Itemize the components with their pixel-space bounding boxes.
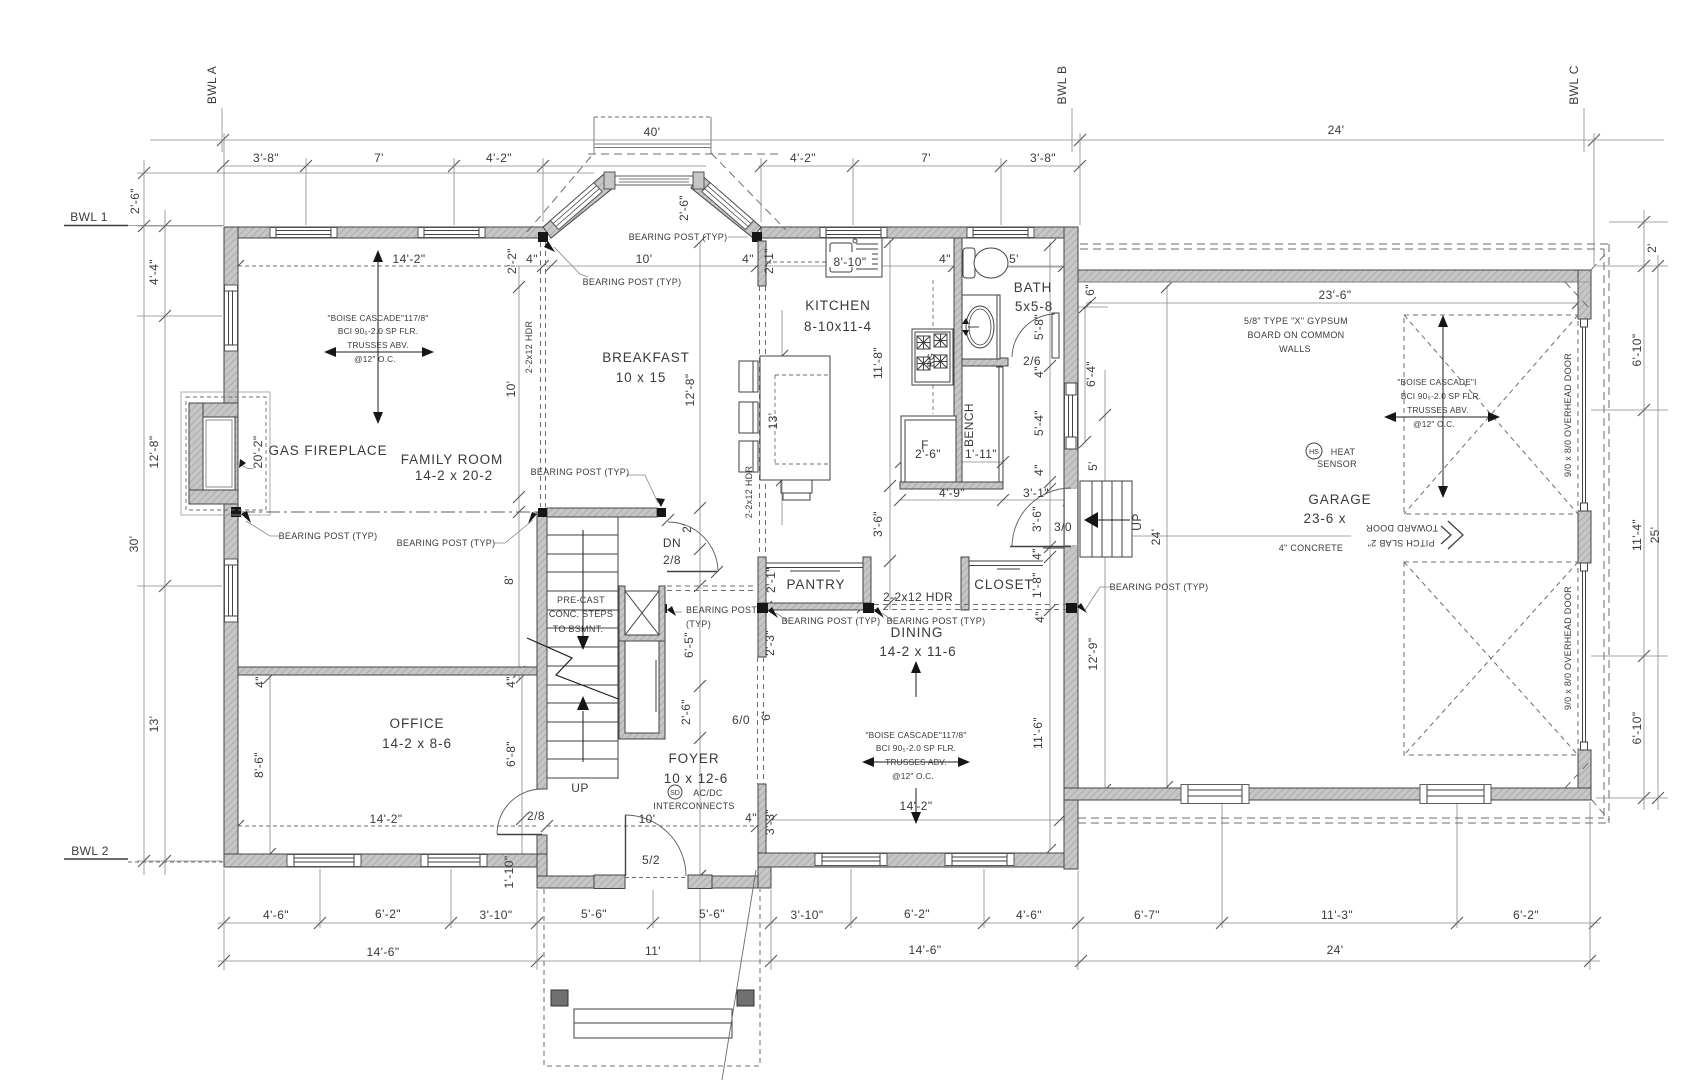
svg-text:@12" O.C.: @12" O.C.	[354, 354, 396, 364]
svg-text:BEARING POST (TYP): BEARING POST (TYP)	[782, 616, 881, 626]
svg-text:BCI 90₅-2.0 SP FLR.: BCI 90₅-2.0 SP FLR.	[338, 326, 418, 336]
svg-text:6'-2": 6'-2"	[1513, 908, 1539, 922]
svg-text:10': 10'	[504, 381, 518, 398]
svg-text:"BOISE CASCADE"117/8": "BOISE CASCADE"117/8"	[866, 730, 967, 740]
svg-text:2': 2'	[1645, 243, 1659, 253]
svg-text:7': 7'	[374, 151, 384, 165]
svg-text:6'-8": 6'-8"	[504, 741, 518, 767]
svg-text:4'-2": 4'-2"	[486, 151, 512, 165]
svg-text:2'-2": 2'-2"	[505, 248, 519, 274]
svg-text:14-2 x 8-6: 14-2 x 8-6	[382, 736, 452, 751]
svg-text:8': 8'	[502, 575, 516, 585]
svg-text:6'-7": 6'-7"	[1134, 908, 1160, 922]
svg-text:4'-2": 4'-2"	[790, 151, 816, 165]
svg-text:BEARING POST (TYP): BEARING POST (TYP)	[1110, 582, 1209, 592]
svg-text:2': 2'	[680, 523, 694, 533]
svg-text:14'-2": 14'-2"	[393, 252, 426, 266]
svg-text:PRE-CAST: PRE-CAST	[557, 595, 605, 605]
svg-text:12'-9": 12'-9"	[1086, 638, 1100, 671]
svg-text:1'-8": 1'-8"	[1030, 572, 1044, 598]
svg-text:BEARING POST (TYP): BEARING POST (TYP)	[397, 538, 496, 548]
svg-text:1'-11": 1'-11"	[965, 447, 997, 461]
svg-text:10 x 15: 10 x 15	[616, 370, 667, 385]
svg-text:8-10x11-4: 8-10x11-4	[804, 319, 872, 334]
svg-text:5x5-8: 5x5-8	[1015, 299, 1053, 314]
svg-text:4'-6": 4'-6"	[1016, 908, 1042, 922]
svg-text:6'-2": 6'-2"	[375, 907, 401, 921]
svg-text:BREAKFAST: BREAKFAST	[602, 350, 690, 365]
svg-text:12'-8": 12'-8"	[683, 374, 697, 407]
svg-text:2-2x12 HDR: 2-2x12 HDR	[524, 321, 534, 374]
svg-text:5': 5'	[1009, 252, 1019, 266]
svg-text:3'-1": 3'-1"	[1023, 486, 1049, 500]
svg-text:BATH: BATH	[1014, 280, 1053, 295]
svg-text:3'-3": 3'-3"	[763, 809, 777, 835]
svg-text:TRUSSES ABV.: TRUSSES ABV.	[1407, 405, 1469, 415]
svg-text:11'-6": 11'-6"	[1031, 717, 1045, 749]
svg-text:9/0 x 8/0 OVERHEAD DOOR: 9/0 x 8/0 OVERHEAD DOOR	[1563, 586, 1573, 710]
svg-text:4" CONCRETE: 4" CONCRETE	[1279, 543, 1344, 553]
svg-text:7': 7'	[921, 151, 931, 165]
svg-text:BEARING POST (TYP): BEARING POST (TYP)	[531, 467, 630, 477]
svg-text:BEARING POST (TYP): BEARING POST (TYP)	[629, 232, 728, 242]
svg-text:4'-6": 4'-6"	[263, 908, 289, 922]
svg-text:14'-2": 14'-2"	[370, 812, 403, 826]
svg-text:4": 4"	[939, 252, 951, 266]
svg-text:3'-10": 3'-10"	[480, 908, 513, 922]
svg-text:BOARD ON COMMON: BOARD ON COMMON	[1247, 330, 1344, 340]
svg-text:23'-6": 23'-6"	[1319, 288, 1352, 302]
svg-text:14'-6": 14'-6"	[909, 943, 942, 957]
svg-text:8'-10": 8'-10"	[834, 255, 867, 269]
svg-text:BENCH: BENCH	[962, 403, 976, 447]
svg-text:UP: UP	[571, 781, 588, 795]
svg-text:HS: HS	[1309, 449, 1319, 456]
svg-text:4": 4"	[1030, 548, 1044, 560]
svg-text:@12" O.C.: @12" O.C.	[892, 771, 934, 781]
svg-text:F: F	[921, 438, 929, 452]
svg-text:TRUSSES ABV.: TRUSSES ABV.	[347, 340, 409, 350]
svg-text:FOYER: FOYER	[668, 751, 719, 766]
svg-text:(TYP): (TYP)	[686, 619, 711, 629]
svg-text:3/0: 3/0	[1054, 520, 1072, 534]
svg-text:6/0: 6/0	[732, 713, 750, 727]
svg-text:TO BSMNT.: TO BSMNT.	[553, 624, 604, 634]
svg-text:11'-8": 11'-8"	[871, 347, 885, 379]
svg-text:14-2 x 11-6: 14-2 x 11-6	[879, 644, 956, 659]
svg-text:10': 10'	[636, 252, 653, 266]
svg-text:1'-10": 1'-10"	[502, 856, 516, 889]
svg-text:GARAGE: GARAGE	[1308, 492, 1371, 507]
svg-text:14'-2": 14'-2"	[900, 799, 933, 813]
svg-text:@12" O.C.: @12" O.C.	[1413, 419, 1455, 429]
svg-text:24': 24'	[1327, 943, 1344, 957]
svg-text:CLOSET: CLOSET	[974, 577, 1033, 592]
svg-text:6'-10": 6'-10"	[1630, 712, 1644, 745]
svg-text:5'-4": 5'-4"	[1032, 410, 1046, 436]
svg-text:PITCH SLAB 2": PITCH SLAB 2"	[1367, 538, 1434, 548]
svg-text:4": 4"	[526, 252, 538, 266]
svg-text:5': 5'	[1086, 461, 1100, 471]
svg-text:14'-6": 14'-6"	[367, 945, 400, 959]
svg-text:TOWARD DOOR: TOWARD DOOR	[1366, 523, 1438, 533]
svg-text:UP: UP	[1130, 513, 1144, 530]
svg-text:9/0 x 8/0 OVERHEAD DOOR: 9/0 x 8/0 OVERHEAD DOOR	[1563, 353, 1573, 477]
svg-text:6'-5": 6'-5"	[682, 632, 696, 658]
svg-text:CONC. STEPS: CONC. STEPS	[549, 609, 613, 619]
svg-text:2'-1": 2'-1"	[762, 248, 776, 274]
svg-text:SD: SD	[670, 790, 680, 797]
svg-text:RG: RG	[926, 353, 936, 367]
svg-text:5'-6": 5'-6"	[699, 907, 725, 921]
svg-text:3'-6": 3'-6"	[1030, 506, 1044, 532]
svg-text:11': 11'	[645, 944, 661, 958]
svg-text:4": 4"	[504, 676, 518, 688]
svg-text:8'-6": 8'-6"	[252, 752, 266, 778]
svg-text:3'-6": 3'-6"	[871, 511, 885, 537]
svg-text:PANTRY: PANTRY	[787, 577, 846, 592]
svg-text:12'-8": 12'-8"	[147, 436, 161, 469]
svg-text:24': 24'	[1149, 529, 1163, 546]
svg-text:40': 40'	[644, 125, 661, 139]
svg-text:14-2 x 20-2: 14-2 x 20-2	[415, 468, 493, 483]
svg-text:FAMILY ROOM: FAMILY ROOM	[401, 452, 503, 467]
svg-text:3'-10": 3'-10"	[791, 908, 824, 922]
svg-text:4": 4"	[745, 811, 757, 825]
svg-text:11'-3": 11'-3"	[1321, 908, 1353, 922]
svg-text:BCI 90₅-2.0 SP FLR.: BCI 90₅-2.0 SP FLR.	[876, 743, 956, 753]
svg-text:20'-2": 20'-2"	[251, 436, 265, 469]
svg-text:DN: DN	[663, 536, 681, 550]
svg-text:2-2x12 HDR: 2-2x12 HDR	[744, 466, 754, 519]
svg-text:AC/DC: AC/DC	[693, 788, 723, 798]
svg-text:23-6 x: 23-6 x	[1304, 511, 1347, 526]
svg-text:3'-8": 3'-8"	[1030, 151, 1056, 165]
svg-text:5/8" TYPE "X" GYPSUM: 5/8" TYPE "X" GYPSUM	[1244, 316, 1348, 326]
svg-text:GAS FIREPLACE: GAS FIREPLACE	[269, 443, 388, 458]
svg-text:6'-2": 6'-2"	[904, 907, 930, 921]
svg-text:24': 24'	[1328, 123, 1345, 137]
svg-text:INTERCONNECTS: INTERCONNECTS	[653, 801, 734, 811]
svg-text:6': 6'	[759, 711, 773, 721]
svg-text:5/2: 5/2	[642, 853, 660, 867]
svg-text:4'-9": 4'-9"	[939, 486, 965, 500]
svg-text:BCI 90₅-2.0 SP FLR.: BCI 90₅-2.0 SP FLR.	[1401, 391, 1481, 401]
svg-text:2'-3": 2'-3"	[763, 630, 777, 656]
svg-text:BWL C: BWL C	[1567, 65, 1581, 105]
svg-text:2/6: 2/6	[1023, 354, 1041, 368]
svg-text:4": 4"	[1033, 611, 1047, 623]
svg-text:4": 4"	[1032, 366, 1046, 378]
svg-text:BEARING POST (TYP): BEARING POST (TYP)	[887, 616, 986, 626]
svg-text:BEARING POST (TYP): BEARING POST (TYP)	[583, 277, 682, 287]
svg-text:BEARING POST: BEARING POST	[686, 605, 757, 615]
svg-text:2'-6": 2'-6"	[677, 195, 691, 221]
svg-text:10 x 12-6: 10 x 12-6	[664, 771, 728, 786]
svg-text:HEAT: HEAT	[1331, 447, 1356, 457]
svg-text:2'-6": 2'-6"	[128, 188, 142, 214]
svg-text:13': 13'	[766, 413, 780, 430]
svg-text:SENSOR: SENSOR	[1317, 459, 1357, 469]
svg-text:"BOISE CASCADE"I: "BOISE CASCADE"I	[1397, 377, 1476, 387]
svg-text:4": 4"	[253, 676, 267, 688]
svg-text:30': 30'	[127, 536, 141, 553]
svg-text:2-2x12 HDR: 2-2x12 HDR	[883, 590, 953, 604]
svg-text:OFFICE: OFFICE	[390, 716, 445, 731]
svg-text:11'-4": 11'-4"	[1630, 519, 1644, 551]
svg-text:2/8: 2/8	[527, 809, 545, 823]
svg-text:6'-4": 6'-4"	[1084, 361, 1098, 387]
svg-text:10': 10'	[639, 812, 656, 826]
svg-text:BWL B: BWL B	[1055, 66, 1069, 105]
svg-text:TRUSSES ABV.: TRUSSES ABV.	[885, 757, 947, 767]
svg-text:BWL 1: BWL 1	[70, 210, 108, 224]
svg-text:BEARING POST (TYP): BEARING POST (TYP)	[279, 531, 378, 541]
svg-text:"BOISE CASCADE"117/8": "BOISE CASCADE"117/8"	[328, 313, 429, 323]
svg-text:BWL A: BWL A	[205, 66, 219, 104]
svg-text:3'-8": 3'-8"	[253, 151, 279, 165]
svg-text:BWL 2: BWL 2	[71, 844, 109, 858]
svg-text:DINING: DINING	[891, 625, 944, 640]
svg-text:2'-6": 2'-6"	[679, 699, 693, 725]
svg-text:6": 6"	[1083, 284, 1097, 296]
svg-text:2/8: 2/8	[663, 553, 681, 567]
svg-text:2'-1": 2'-1"	[764, 567, 778, 593]
svg-text:KITCHEN: KITCHEN	[805, 298, 871, 313]
svg-text:5'-6": 5'-6"	[581, 907, 607, 921]
svg-text:WALLS: WALLS	[1279, 344, 1311, 354]
svg-text:13': 13'	[147, 716, 161, 733]
svg-text:4": 4"	[1032, 464, 1046, 476]
svg-text:6'-10": 6'-10"	[1630, 334, 1644, 367]
svg-text:5'-8": 5'-8"	[1032, 314, 1046, 340]
svg-text:4": 4"	[742, 252, 754, 266]
svg-text:4'-4": 4'-4"	[147, 259, 161, 285]
svg-text:25': 25'	[1648, 527, 1662, 544]
